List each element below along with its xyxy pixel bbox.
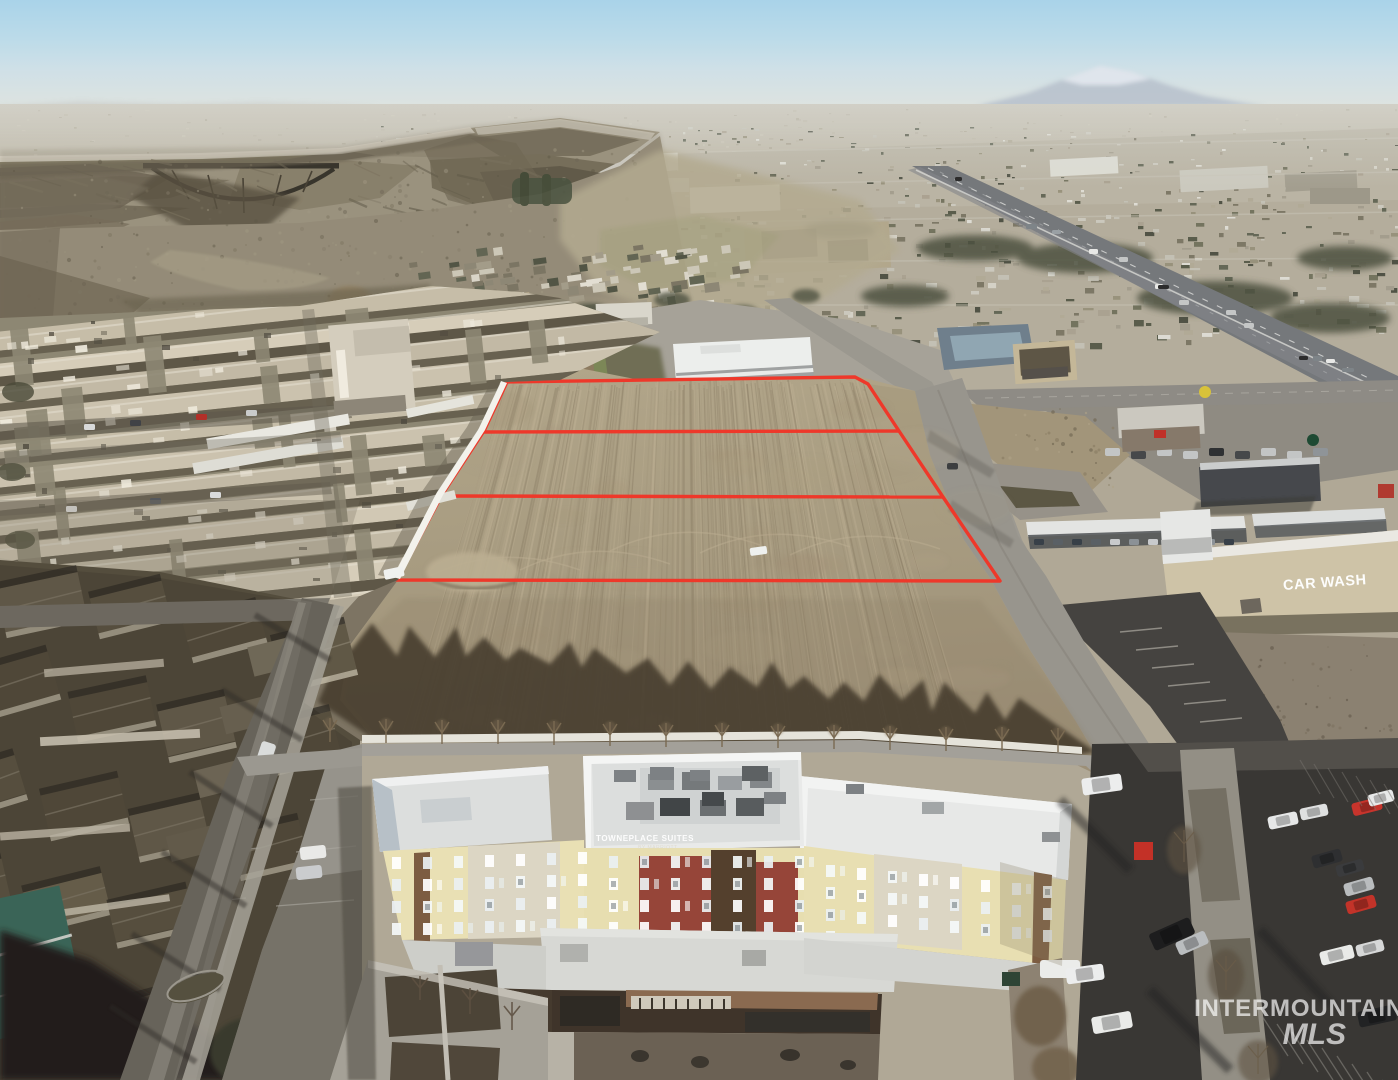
svg-text:BY MARRIOTT: BY MARRIOTT: [638, 845, 678, 851]
svg-text:MLS: MLS: [1283, 1018, 1346, 1051]
svg-text:TOWNEPLACE SUITES: TOWNEPLACE SUITES: [596, 834, 694, 843]
